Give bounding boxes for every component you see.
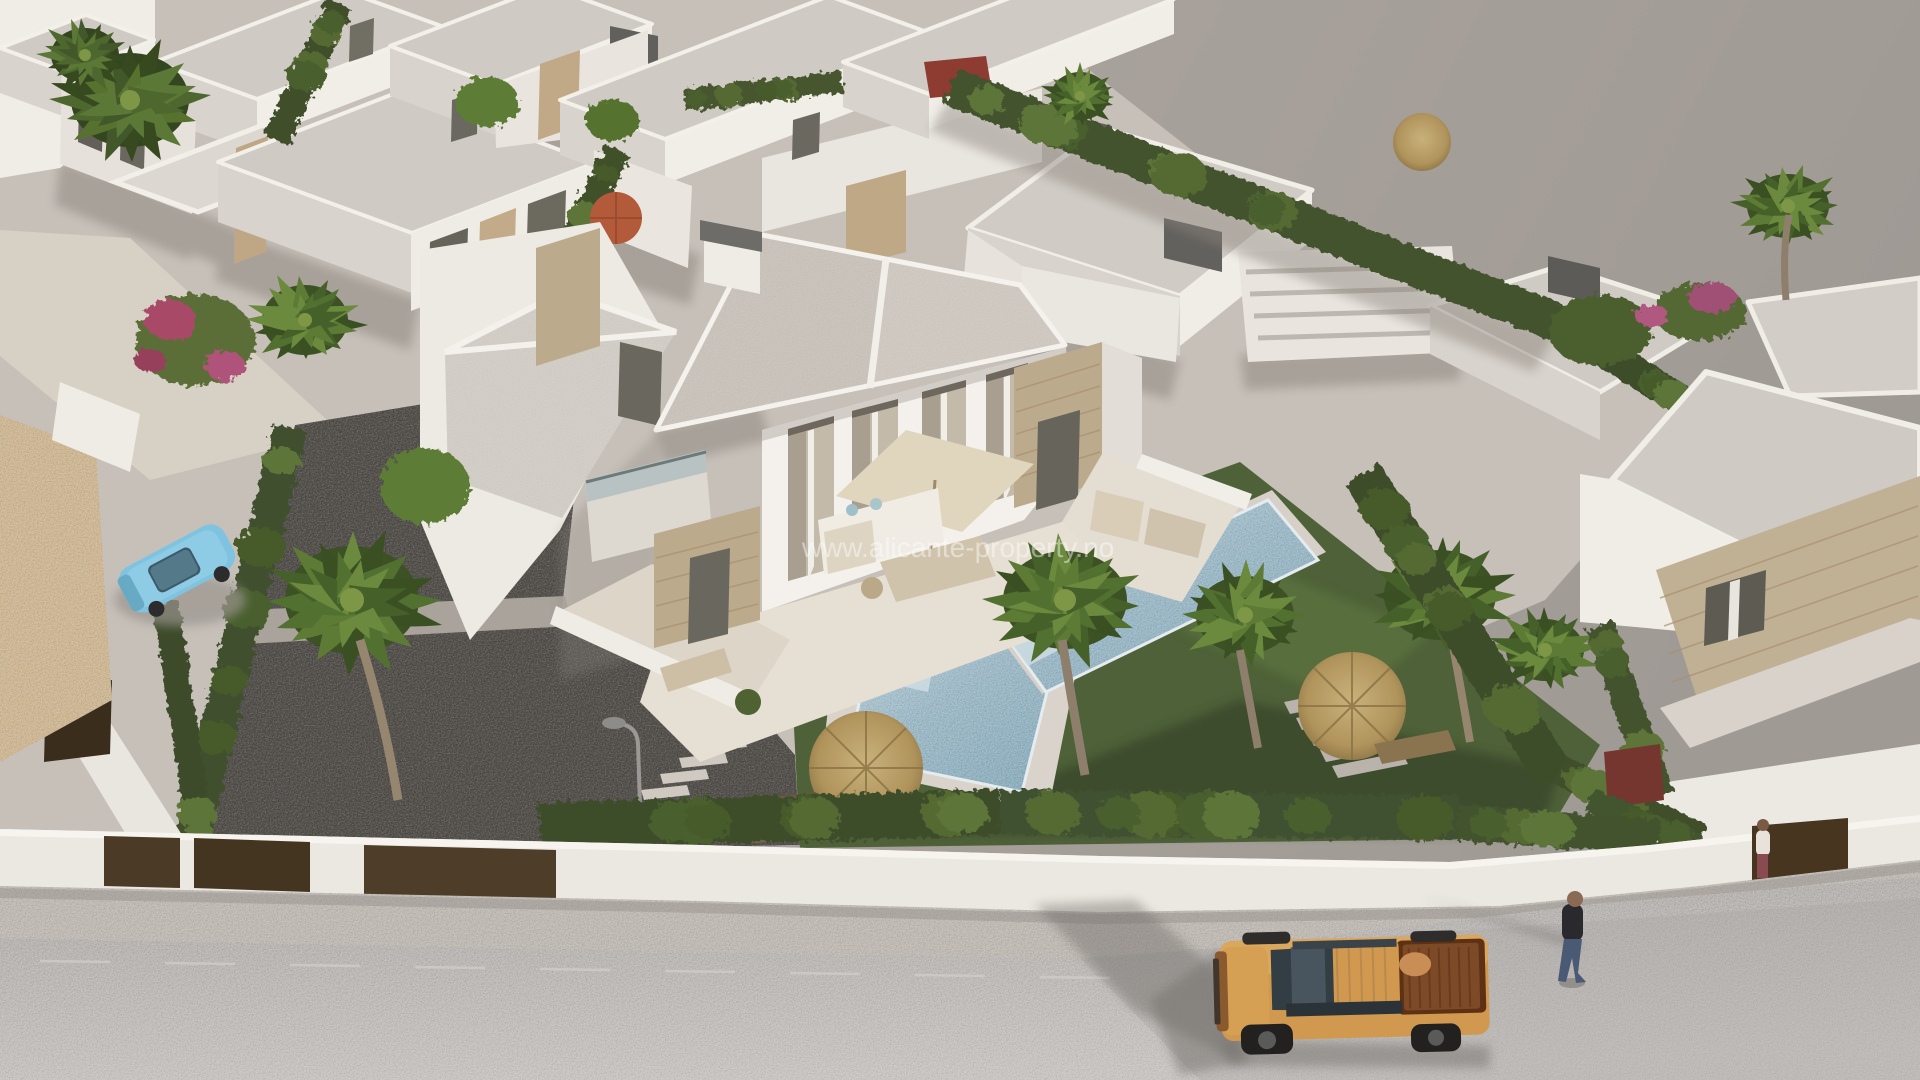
svg-text:www.alicante-property.no: www.alicante-property.no — [801, 532, 1114, 563]
